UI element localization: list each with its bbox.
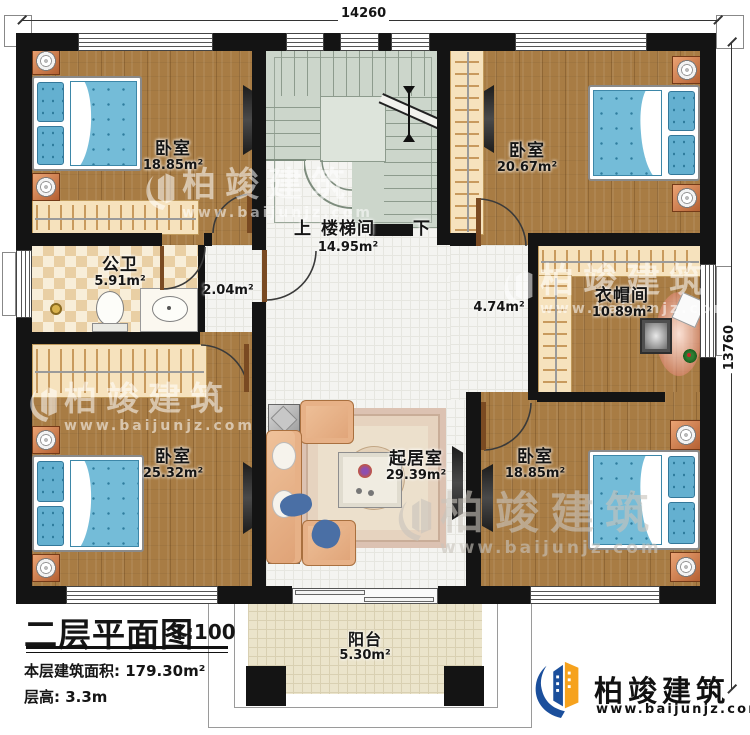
balcony-pillar-left <box>246 666 286 706</box>
pillow <box>668 91 695 131</box>
stair-left-flight <box>266 96 320 160</box>
sliding-door-panel <box>295 590 365 595</box>
toilet-icon <box>96 291 124 326</box>
wall <box>16 332 200 344</box>
door-leaf <box>247 193 252 233</box>
label-stair-down: 下 <box>413 220 431 239</box>
lamp-icon <box>676 188 698 208</box>
lamp-icon <box>36 177 56 197</box>
stair-rail-line <box>266 159 306 161</box>
wall <box>16 33 32 250</box>
label-cloakroom: 衣帽间 10.89m² <box>572 287 672 321</box>
wall <box>466 392 481 588</box>
door-small-hall <box>266 250 317 301</box>
door-leaf <box>476 198 481 246</box>
room-area: 18.85m² <box>490 467 580 482</box>
wall <box>324 33 340 51</box>
bathroom-window-sill <box>2 252 16 316</box>
armchair-top <box>300 400 354 444</box>
wall <box>528 233 700 246</box>
closet-rod <box>555 278 557 396</box>
wall <box>16 318 32 604</box>
closet-rod <box>467 52 469 232</box>
wall <box>537 392 665 402</box>
cloakroom-closet-top <box>538 245 702 277</box>
title-underline-2 <box>26 652 228 653</box>
pillow <box>37 126 64 166</box>
bed-pillows <box>665 87 698 179</box>
wall <box>700 358 716 604</box>
nightstand <box>32 173 60 201</box>
pillow <box>668 502 695 544</box>
bed-pillows <box>665 452 698 548</box>
plant-icon <box>682 348 698 364</box>
lamp-icon <box>674 424 698 446</box>
door-bedroom-bl <box>200 344 249 393</box>
stair-landing <box>320 96 386 162</box>
wall <box>252 49 266 250</box>
door-leaf <box>244 344 249 392</box>
nightstand <box>32 47 60 75</box>
window-stair-3 <box>391 33 430 51</box>
window-cloakroom <box>700 264 716 358</box>
label-bedroom-tl: 卧室 18.85m² <box>128 140 218 174</box>
window-bedroom-tl <box>78 33 213 51</box>
wall <box>528 245 538 400</box>
nightstand <box>32 426 60 454</box>
door-leaf <box>262 250 267 302</box>
room-area: 20.67m² <box>482 161 572 176</box>
wall <box>437 49 450 245</box>
pillow <box>668 456 695 498</box>
lamp-icon <box>36 51 56 71</box>
dim-top-value: 14260 <box>338 6 389 21</box>
lamp-icon <box>674 556 698 578</box>
room-name: 卧室 <box>128 448 218 467</box>
floor-area-line: 本层建筑面积: 179.30m² <box>24 660 205 681</box>
floor-height-line: 层高: 3.3m <box>24 686 107 707</box>
toilet-tank <box>92 323 128 332</box>
window-bathroom <box>16 250 32 318</box>
closet-rod <box>35 218 196 220</box>
closet-rod <box>541 261 699 263</box>
label-bedroom-tr: 卧室 20.67m² <box>482 142 572 176</box>
company-logo-url: www.baijunjz.com <box>596 702 750 717</box>
label-stair-up: 上 <box>294 220 312 239</box>
wall <box>16 586 66 604</box>
stair-arrow-up-icon <box>403 133 415 142</box>
label-balcony: 阳台 5.30m² <box>320 631 410 663</box>
bed-fold <box>70 460 94 547</box>
room-area: 10.89m² <box>572 306 672 321</box>
wall <box>450 233 478 246</box>
pillow <box>37 82 64 122</box>
table-cup <box>356 488 362 494</box>
bed-tl <box>32 76 142 171</box>
nightstand <box>670 552 702 582</box>
bed-tr <box>588 85 700 181</box>
room-name: 起居室 <box>370 450 462 469</box>
wall <box>204 233 212 246</box>
room-area: 25.32m² <box>128 467 218 482</box>
bed-pillows <box>34 457 67 550</box>
company-logo-icon <box>532 658 590 720</box>
pillow <box>668 135 695 175</box>
nightstand <box>672 56 702 84</box>
window-stair-2 <box>340 33 379 51</box>
door-bedroom-tr <box>478 198 527 247</box>
stair-rail-arcs <box>304 160 354 210</box>
wall <box>213 33 286 51</box>
door-leaf <box>481 402 486 450</box>
bed-pillows <box>34 78 67 169</box>
label-stair-name: 楼梯间 <box>321 220 375 239</box>
pillow <box>37 461 64 502</box>
closet-rod <box>35 371 204 373</box>
stair-arrow-down-icon <box>403 86 415 95</box>
sliding-door-panel <box>364 597 434 602</box>
label-bathroom: 公卫 5.91m² <box>85 256 155 290</box>
room-area: 29.39m² <box>370 469 462 484</box>
closet-bl <box>32 344 207 398</box>
room-name: 卧室 <box>128 140 218 159</box>
room-area: 5.91m² <box>85 275 155 290</box>
hall-arm-floor <box>450 245 538 400</box>
room-area: 5.30m² <box>320 649 410 664</box>
door-leaf <box>160 246 164 290</box>
nightstand <box>32 554 60 582</box>
window-stair-1 <box>286 33 324 51</box>
wall <box>700 33 716 264</box>
label-stair-area: 14.95m² <box>312 241 384 256</box>
wall <box>32 233 162 246</box>
room-name: 衣帽间 <box>572 287 672 306</box>
lamp-icon <box>36 430 56 450</box>
floor-drain-icon <box>50 303 62 315</box>
wall <box>370 224 413 236</box>
window-bedroom-bl <box>66 586 218 604</box>
bed-fold <box>637 455 662 545</box>
bed-quilt <box>593 90 662 176</box>
room-name: 公卫 <box>85 256 155 275</box>
nightstand <box>670 420 702 450</box>
door-bedroom-br <box>483 402 532 451</box>
lamp-icon <box>676 60 698 80</box>
label-living: 起居室 29.39m² <box>370 450 462 484</box>
balcony-pillar-right <box>444 666 484 706</box>
room-name: 阳台 <box>320 631 410 649</box>
lamp-icon <box>36 558 56 578</box>
window-bedroom-br <box>530 586 660 604</box>
plan-scale: 1:100 <box>172 620 236 644</box>
window-bedroom-tr <box>515 33 647 51</box>
sink-drain <box>167 306 171 310</box>
closet-tl <box>32 200 199 235</box>
label-bedroom-br: 卧室 18.85m² <box>490 448 580 482</box>
wall <box>379 33 391 51</box>
label-bedroom-bl: 卧室 25.32m² <box>128 448 218 482</box>
wall <box>252 302 266 586</box>
bed-quilt <box>593 455 662 545</box>
table-cup <box>368 490 374 496</box>
nightstand <box>672 184 702 212</box>
bed-quilt <box>70 81 137 166</box>
pillow <box>37 506 64 547</box>
bed-br <box>588 450 700 550</box>
dim-right-value: 13760 <box>722 322 737 373</box>
bed-fold <box>638 90 662 176</box>
room-area: 18.85m² <box>128 159 218 174</box>
wall <box>218 586 292 604</box>
cloakroom-closet-left <box>538 275 572 399</box>
wall <box>438 586 530 604</box>
label-small-hall: 2.04m² <box>200 284 256 299</box>
floor-plan: 卧室 18.85m² 卧室 20.67m² 公卫 5.91m² 2.04m² 上… <box>0 0 750 735</box>
desk-monitor <box>640 318 672 354</box>
room-name: 卧室 <box>490 448 580 467</box>
wall <box>660 586 716 604</box>
room-name: 卧室 <box>482 142 572 161</box>
title-underline <box>26 646 228 649</box>
label-center-hall: 4.74m² <box>470 301 528 316</box>
sofa-pillow <box>272 442 296 470</box>
bed-fold <box>70 81 94 166</box>
